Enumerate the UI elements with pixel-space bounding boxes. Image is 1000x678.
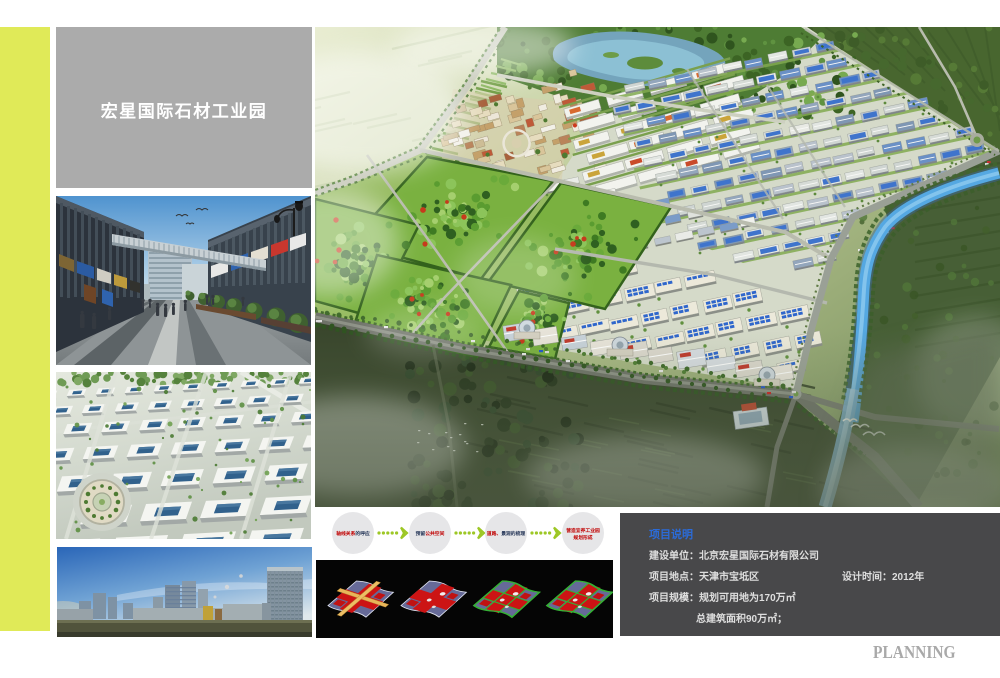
- svg-text:预留公共空间: 预留公共空间: [416, 530, 445, 537]
- svg-text:营造宜养工业园: 营造宜养工业园: [566, 527, 600, 534]
- svg-text:规划形成: 规划形成: [573, 534, 592, 541]
- svg-text:道路、景观的梳理: 道路、景观的梳理: [487, 530, 526, 537]
- svg-text:轴线关系的呼应: 轴线关系的呼应: [336, 530, 370, 537]
